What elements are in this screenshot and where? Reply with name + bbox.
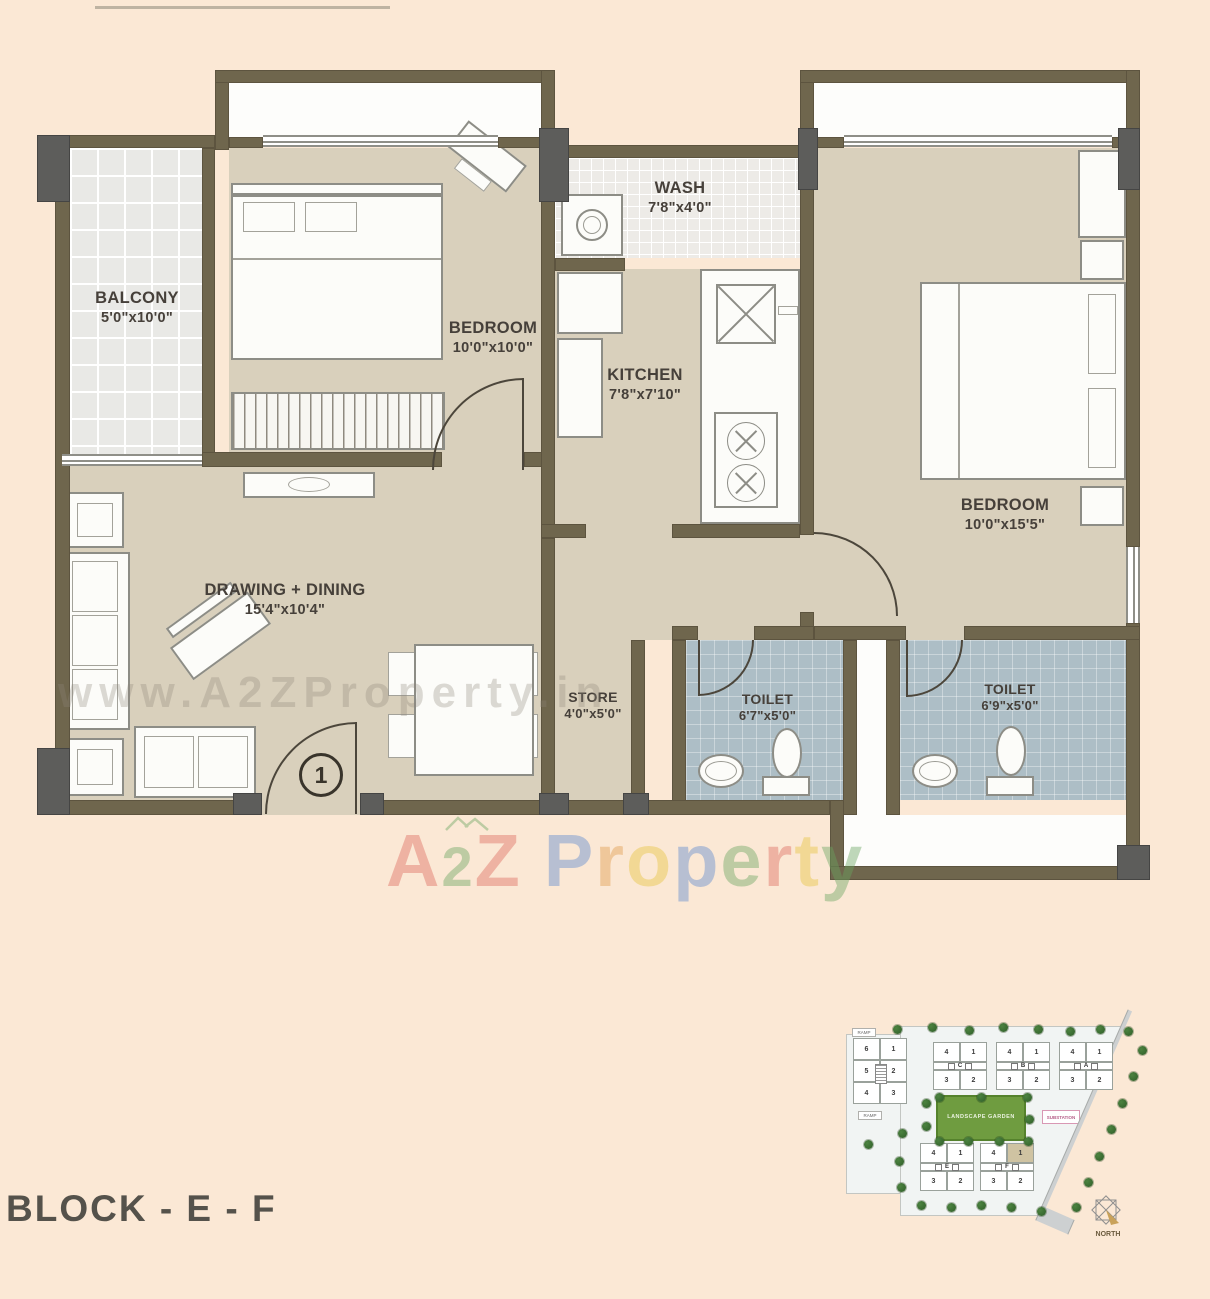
site-unit: 1 — [960, 1042, 987, 1062]
washbasin — [698, 754, 744, 788]
site-unit: 4 — [980, 1143, 1007, 1163]
tree-icon — [895, 1157, 904, 1166]
site-block-a: 41A32 — [1059, 1042, 1113, 1090]
bed-headboard — [231, 183, 443, 195]
site-unit: 2 — [1007, 1171, 1034, 1191]
wall — [555, 258, 625, 271]
opening — [698, 626, 754, 640]
wall — [631, 640, 645, 815]
decor-bowl — [288, 477, 330, 492]
sliding-door — [62, 454, 202, 466]
brand-letter: P — [544, 819, 595, 902]
window — [1126, 547, 1140, 623]
room-dims: 7'8"x4'0" — [590, 199, 770, 218]
tree-icon — [1007, 1203, 1016, 1212]
wall — [541, 524, 586, 538]
column — [37, 748, 70, 815]
wall — [672, 640, 686, 815]
site-block-e: 41E32 — [920, 1143, 974, 1191]
floor-plan-page: BALCONY 5'0"x10'0" BEDROOM 10'0"x10'0" W… — [0, 0, 1210, 1299]
garden-label: LANDSCAPE GARDEN — [947, 1114, 1015, 1122]
tree-icon — [1023, 1093, 1032, 1102]
side-table — [66, 492, 124, 548]
site-block-core: B — [996, 1062, 1050, 1070]
tree-icon — [977, 1201, 986, 1210]
opening — [586, 524, 672, 538]
window — [844, 135, 1112, 147]
wall — [1126, 623, 1140, 880]
room-dims: 15'4"x10'4" — [160, 601, 410, 620]
wall — [55, 800, 262, 815]
lift-icon — [965, 1063, 972, 1070]
site-block-letter: C — [958, 1063, 962, 1069]
column — [1118, 128, 1140, 190]
wall — [1126, 135, 1140, 547]
tree-icon — [1095, 1152, 1104, 1161]
tree-icon — [1118, 1099, 1127, 1108]
site-block-letter: A — [1084, 1063, 1088, 1069]
tree-icon — [1124, 1027, 1133, 1036]
side-table — [1080, 240, 1124, 280]
tree-icon — [965, 1026, 974, 1035]
room-label-bedroom1: BEDROOM 10'0"x10'0" — [393, 318, 593, 358]
site-unit: 3 — [880, 1082, 907, 1104]
tree-icon — [897, 1183, 906, 1192]
wall — [555, 145, 814, 158]
room-name: WASH — [590, 178, 770, 199]
column — [539, 128, 569, 202]
lift-icon — [935, 1164, 942, 1171]
room-label-drawing-dining: DRAWING + DINING 15'4"x10'4" — [160, 580, 410, 620]
site-unit: 1 — [1023, 1042, 1050, 1062]
svg-text:NORTH: NORTH — [1096, 1231, 1121, 1238]
tree-icon — [928, 1023, 937, 1032]
room-name: TOILET — [695, 690, 840, 708]
column — [233, 793, 262, 815]
brand-letter: t — [794, 819, 821, 902]
tree-icon — [964, 1137, 973, 1146]
ramp-label: RAMP — [863, 1113, 876, 1118]
site-unit: 4 — [920, 1143, 947, 1163]
brand-letter: A — [386, 819, 441, 902]
pillow — [1088, 294, 1116, 374]
stair-core-icon — [875, 1064, 887, 1084]
site-block-letter: F — [1005, 1164, 1009, 1170]
wall — [814, 626, 906, 640]
substation: SUBSTATION — [1042, 1110, 1080, 1124]
faucet — [778, 306, 798, 315]
room-label-balcony: BALCONY 5'0"x10'0" — [62, 288, 212, 328]
tree-icon — [1034, 1025, 1043, 1034]
tree-icon — [1096, 1025, 1105, 1034]
column — [798, 128, 818, 190]
site-unit: 1 — [947, 1143, 974, 1163]
loveseat — [134, 726, 256, 798]
pillow — [305, 202, 357, 232]
site-unit: 6 — [853, 1038, 880, 1060]
site-block-f: 41F32 — [980, 1143, 1034, 1191]
stove — [714, 412, 778, 508]
site-unit: 1 — [880, 1038, 907, 1060]
tree-icon — [977, 1093, 986, 1102]
tree-icon — [893, 1025, 902, 1034]
lift-icon — [1012, 1164, 1019, 1171]
wc-tank — [986, 776, 1034, 796]
brand-letter: o — [626, 819, 673, 902]
site-block-letter: E — [945, 1164, 949, 1170]
room-dims: 10'0"x10'0" — [393, 339, 593, 358]
room-dims: 10'0"x15'5" — [905, 516, 1105, 535]
site-unit: 3 — [1059, 1070, 1086, 1090]
pillow — [243, 202, 295, 232]
site-unit: 1 — [1086, 1042, 1113, 1062]
site-unit: 3 — [920, 1171, 947, 1191]
column — [623, 793, 649, 815]
room-name: BEDROOM — [393, 318, 593, 339]
compass-icon: NORTH — [1086, 1192, 1130, 1240]
site-unit: 4 — [933, 1042, 960, 1062]
side-table — [66, 738, 124, 796]
tree-icon — [1024, 1137, 1033, 1146]
tree-icon — [864, 1140, 873, 1149]
tree-icon — [1066, 1027, 1075, 1036]
recess-right — [814, 83, 1126, 137]
column — [539, 793, 569, 815]
pillow — [1088, 388, 1116, 468]
tree-icon — [1129, 1072, 1138, 1081]
room-dims: 6'9"x5'0" — [935, 698, 1085, 715]
tree-icon — [947, 1203, 956, 1212]
tree-icon — [1072, 1203, 1081, 1212]
room-name: TOILET — [935, 680, 1085, 698]
room-dims: 5'0"x10'0" — [62, 309, 212, 328]
site-unit: 4 — [1059, 1042, 1086, 1062]
wall — [886, 640, 900, 815]
room-label-toilet1: TOILET 6'7"x5'0" — [695, 690, 840, 725]
site-block-b: 41B32 — [996, 1042, 1050, 1090]
wall — [55, 135, 215, 148]
lift-icon — [1074, 1063, 1081, 1070]
washbasin — [912, 754, 958, 788]
tree-icon — [1107, 1125, 1116, 1134]
brand-letter: e — [720, 819, 763, 902]
duct — [857, 640, 886, 815]
wall — [800, 135, 814, 535]
wall — [498, 137, 541, 148]
wall — [843, 640, 857, 815]
tree-icon — [1138, 1046, 1147, 1055]
lift-icon — [1091, 1063, 1098, 1070]
wall — [672, 524, 800, 538]
site-block-core: F — [980, 1163, 1034, 1171]
brand-mountains-icon — [442, 814, 494, 832]
site-plan: LANDSCAPE GARDEN SUBSTATION RAMP RAMP 61… — [838, 1012, 1210, 1247]
wall — [202, 452, 442, 467]
top-crop-line — [95, 6, 390, 9]
wall — [830, 866, 1140, 880]
site-unit: 4 — [853, 1082, 880, 1104]
sink — [716, 284, 776, 344]
wall — [814, 137, 844, 148]
room-label-wash: WASH 7'8"x4'0" — [590, 178, 770, 218]
lift-icon — [1011, 1063, 1018, 1070]
room-dims: 6'7"x5'0" — [695, 708, 840, 725]
wall — [754, 626, 814, 640]
block-title: BLOCK - E - F — [6, 1188, 277, 1230]
tree-icon — [922, 1122, 931, 1131]
wall — [360, 800, 830, 815]
site-unit: 3 — [933, 1070, 960, 1090]
room-label-kitchen: KITCHEN 7'8"x7'10" — [555, 365, 735, 405]
column — [1117, 845, 1150, 880]
wc-bowl — [772, 728, 802, 778]
entrance-number: 1 — [315, 762, 328, 789]
room-name: KITCHEN — [555, 365, 735, 386]
brand-letter: r — [595, 819, 626, 902]
bed-fold-line — [958, 284, 960, 478]
wall — [229, 137, 263, 148]
column — [37, 135, 70, 202]
ramp-label: RAMP — [857, 1030, 870, 1035]
lift-icon — [952, 1164, 959, 1171]
tree-icon — [999, 1023, 1008, 1032]
room-name: DRAWING + DINING — [160, 580, 410, 601]
lift-icon — [948, 1063, 955, 1070]
site-unit: 2 — [960, 1070, 987, 1090]
lift-icon — [995, 1164, 1002, 1171]
recess-left — [229, 83, 541, 137]
site-block-core: E — [920, 1163, 974, 1171]
passage-floor — [555, 524, 800, 640]
wardrobe — [231, 392, 445, 450]
wall — [964, 626, 1140, 640]
site-block-core: C — [933, 1062, 987, 1070]
window — [263, 135, 498, 147]
site-unit: 4 — [996, 1042, 1023, 1062]
column — [360, 793, 384, 815]
site-unit: 3 — [980, 1171, 1007, 1191]
site-unit: 2 — [1023, 1070, 1050, 1090]
tree-icon — [935, 1093, 944, 1102]
brand-letter: 2 — [441, 835, 474, 898]
room-name: BEDROOM — [905, 495, 1105, 516]
tree-icon — [1037, 1207, 1046, 1216]
entrance-number-badge: 1 — [299, 753, 343, 797]
tree-icon — [898, 1129, 907, 1138]
site-unit: 1 — [1007, 1143, 1034, 1163]
lift-icon — [1028, 1063, 1035, 1070]
ramp: RAMP — [858, 1111, 882, 1120]
site-unit: 2 — [1086, 1070, 1113, 1090]
brand-watermark: A2ZProperty — [386, 818, 864, 903]
wall — [800, 70, 1140, 83]
tree-icon — [935, 1137, 944, 1146]
tree-icon — [922, 1099, 931, 1108]
site-unit: 3 — [996, 1070, 1023, 1090]
opening — [906, 626, 964, 640]
room-label-toilet2: TOILET 6'9"x5'0" — [935, 680, 1085, 715]
room-name: BALCONY — [62, 288, 212, 309]
ramp: RAMP — [852, 1028, 876, 1037]
site-block-core: A — [1059, 1062, 1113, 1070]
room-dims: 7'8"x7'10" — [555, 386, 735, 405]
wc-bowl — [996, 726, 1026, 776]
url-watermark: www.A2ZProperty.in — [58, 668, 609, 718]
site-block-c: 41C32 — [933, 1042, 987, 1090]
wall — [672, 626, 698, 640]
site-block-letter: B — [1021, 1063, 1025, 1069]
brand-letter: p — [673, 819, 720, 902]
tree-icon — [1084, 1178, 1093, 1187]
tree-icon — [1025, 1115, 1034, 1124]
site-block-d: 615243 — [853, 1038, 907, 1104]
wc-tank — [762, 776, 810, 796]
tree-icon — [995, 1137, 1004, 1146]
substation-label: SUBSTATION — [1047, 1115, 1076, 1120]
site-unit: 2 — [947, 1171, 974, 1191]
tree-icon — [917, 1201, 926, 1210]
opening — [800, 535, 814, 612]
bed-fold-line — [233, 258, 441, 260]
brand-letter: y — [821, 819, 864, 902]
brand-letter: r — [764, 819, 795, 902]
ledge — [830, 815, 1126, 866]
room-label-bedroom2: BEDROOM 10'0"x15'5" — [905, 495, 1105, 535]
wall — [215, 70, 555, 83]
